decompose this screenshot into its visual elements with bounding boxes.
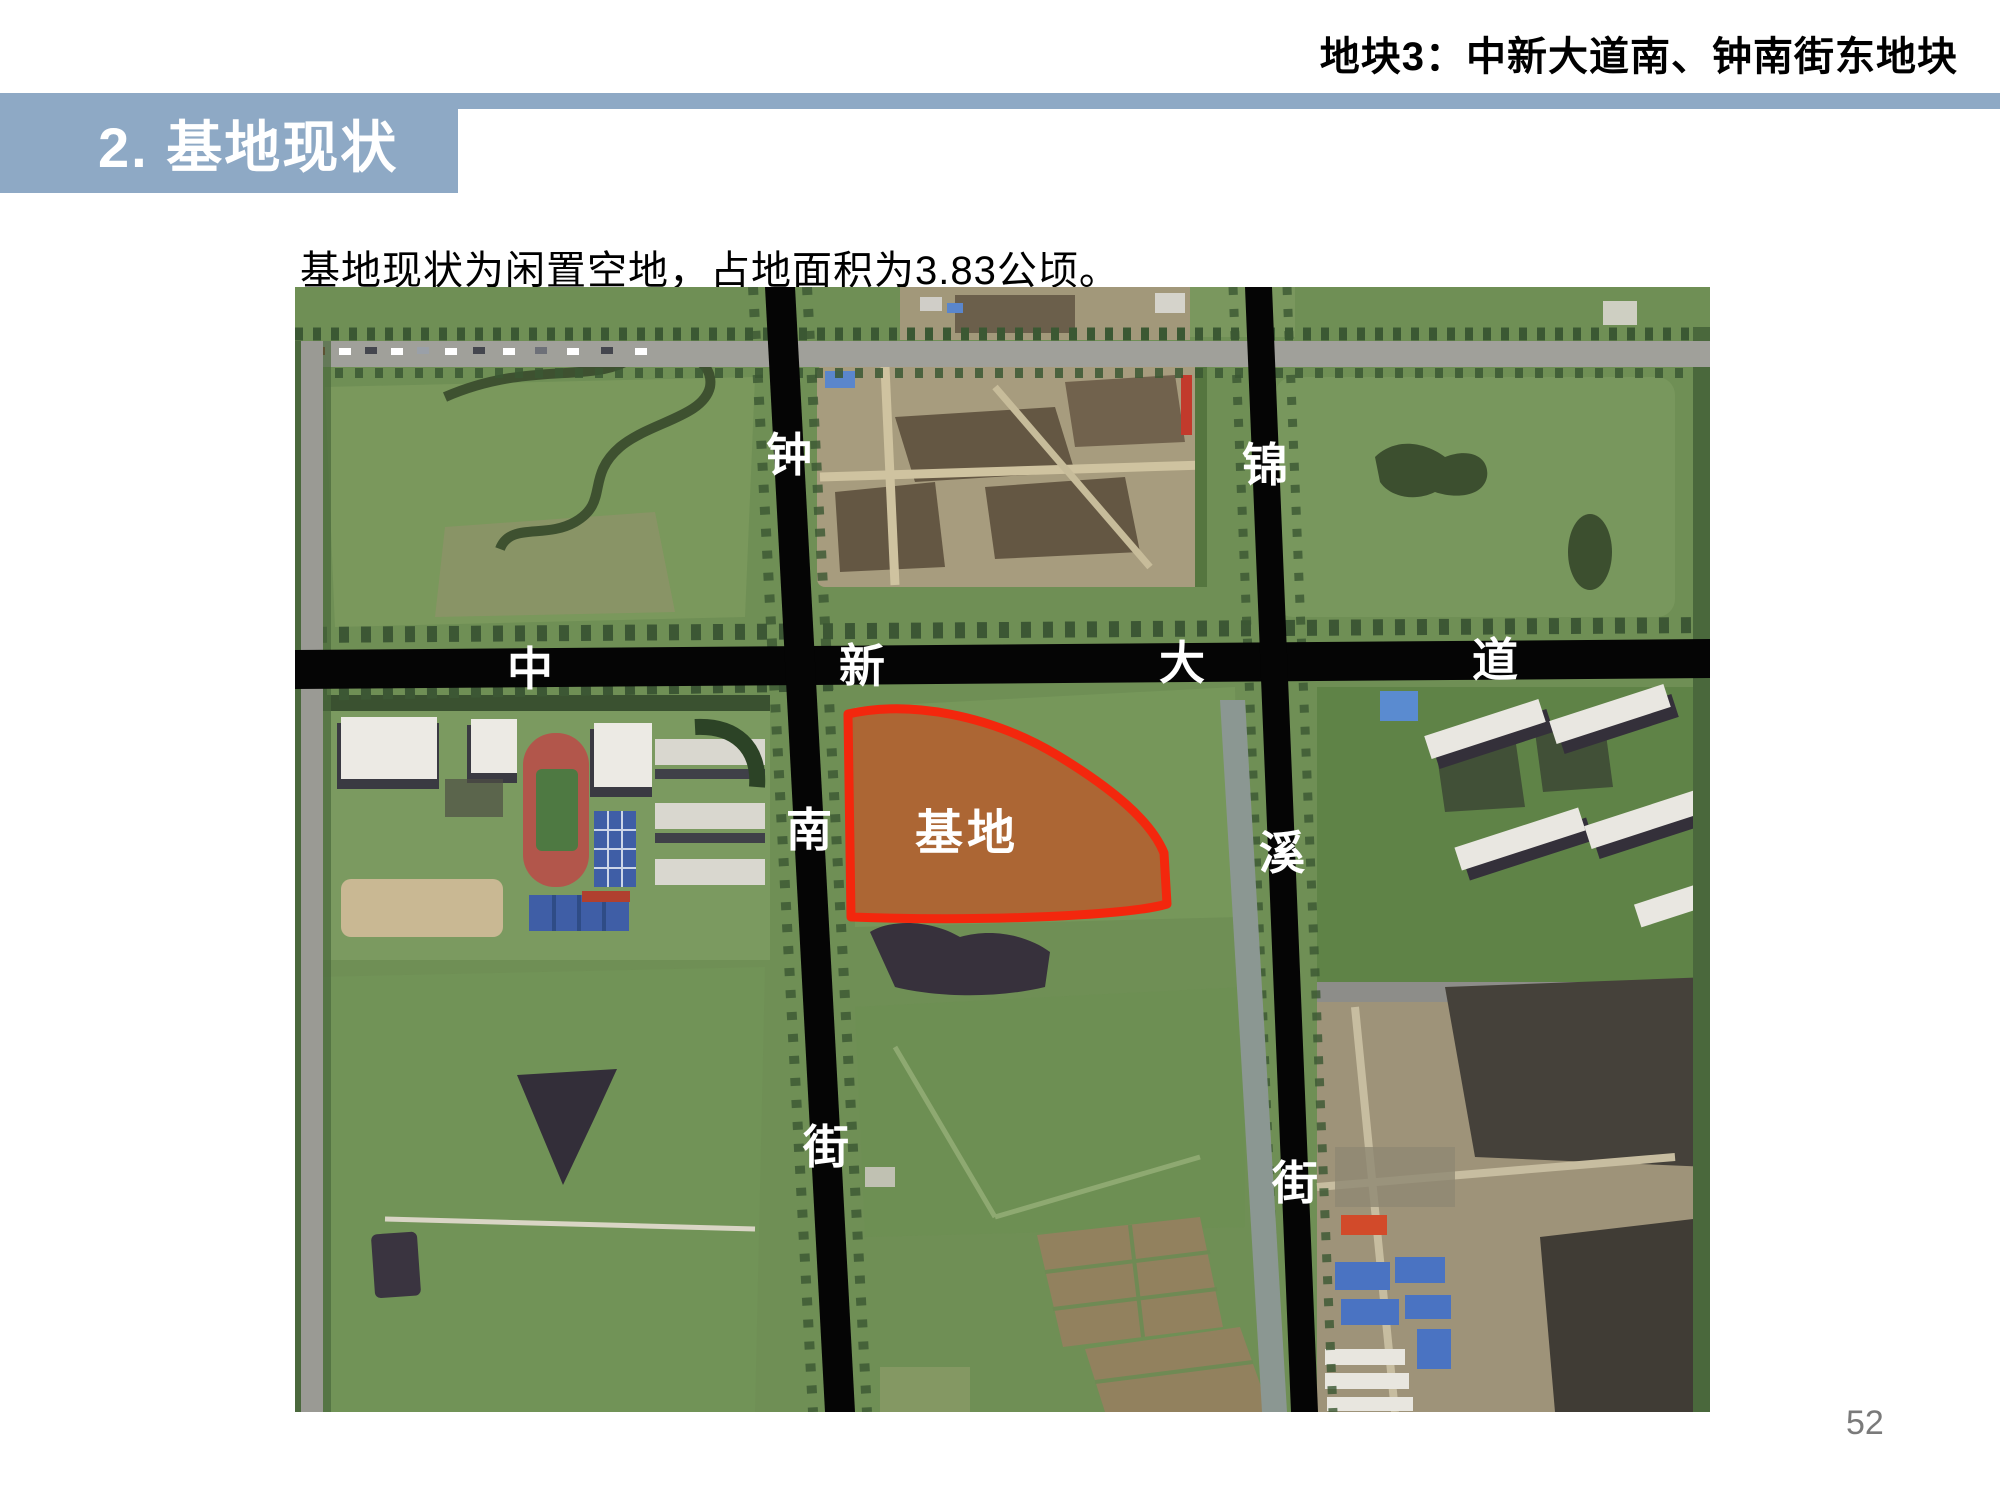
- section-title: 2. 基地现状: [0, 103, 398, 184]
- road-label-da: 大: [1159, 637, 1205, 689]
- road-label-zhong2: 中: [507, 643, 553, 695]
- satellite-map-graphic: 钟 南 街 锦 溪 街 中 新 大 道 基地: [295, 287, 1710, 1412]
- page-number: 52: [1846, 1404, 1884, 1443]
- road-label-dao: 道: [1472, 634, 1518, 686]
- section-header-block: 2. 基地现状: [0, 93, 458, 193]
- dirt-area: [341, 879, 503, 937]
- road-label-zhong: 钟: [766, 429, 812, 481]
- road-label-xin: 新: [839, 640, 885, 692]
- road-label-jie-east: 街: [1271, 1157, 1318, 1209]
- residential-area: [1317, 684, 1710, 1412]
- red-roof-building: [1181, 375, 1192, 435]
- road-label-nan: 南: [786, 804, 832, 856]
- track-infield: [536, 769, 578, 851]
- site-label: 基地: [915, 807, 1019, 860]
- road-label-jie-west: 街: [802, 1121, 849, 1173]
- slide-title: 地块3：中新大道南、钟南街东地块: [558, 24, 1958, 82]
- road-label-xi: 溪: [1259, 827, 1306, 879]
- satellite-map: 钟 南 街 锦 溪 街 中 新 大 道 基地: [295, 287, 1710, 1412]
- road-label-jin: 锦: [1242, 439, 1288, 491]
- pond-rect: [371, 1231, 421, 1298]
- west-road: [299, 341, 323, 1412]
